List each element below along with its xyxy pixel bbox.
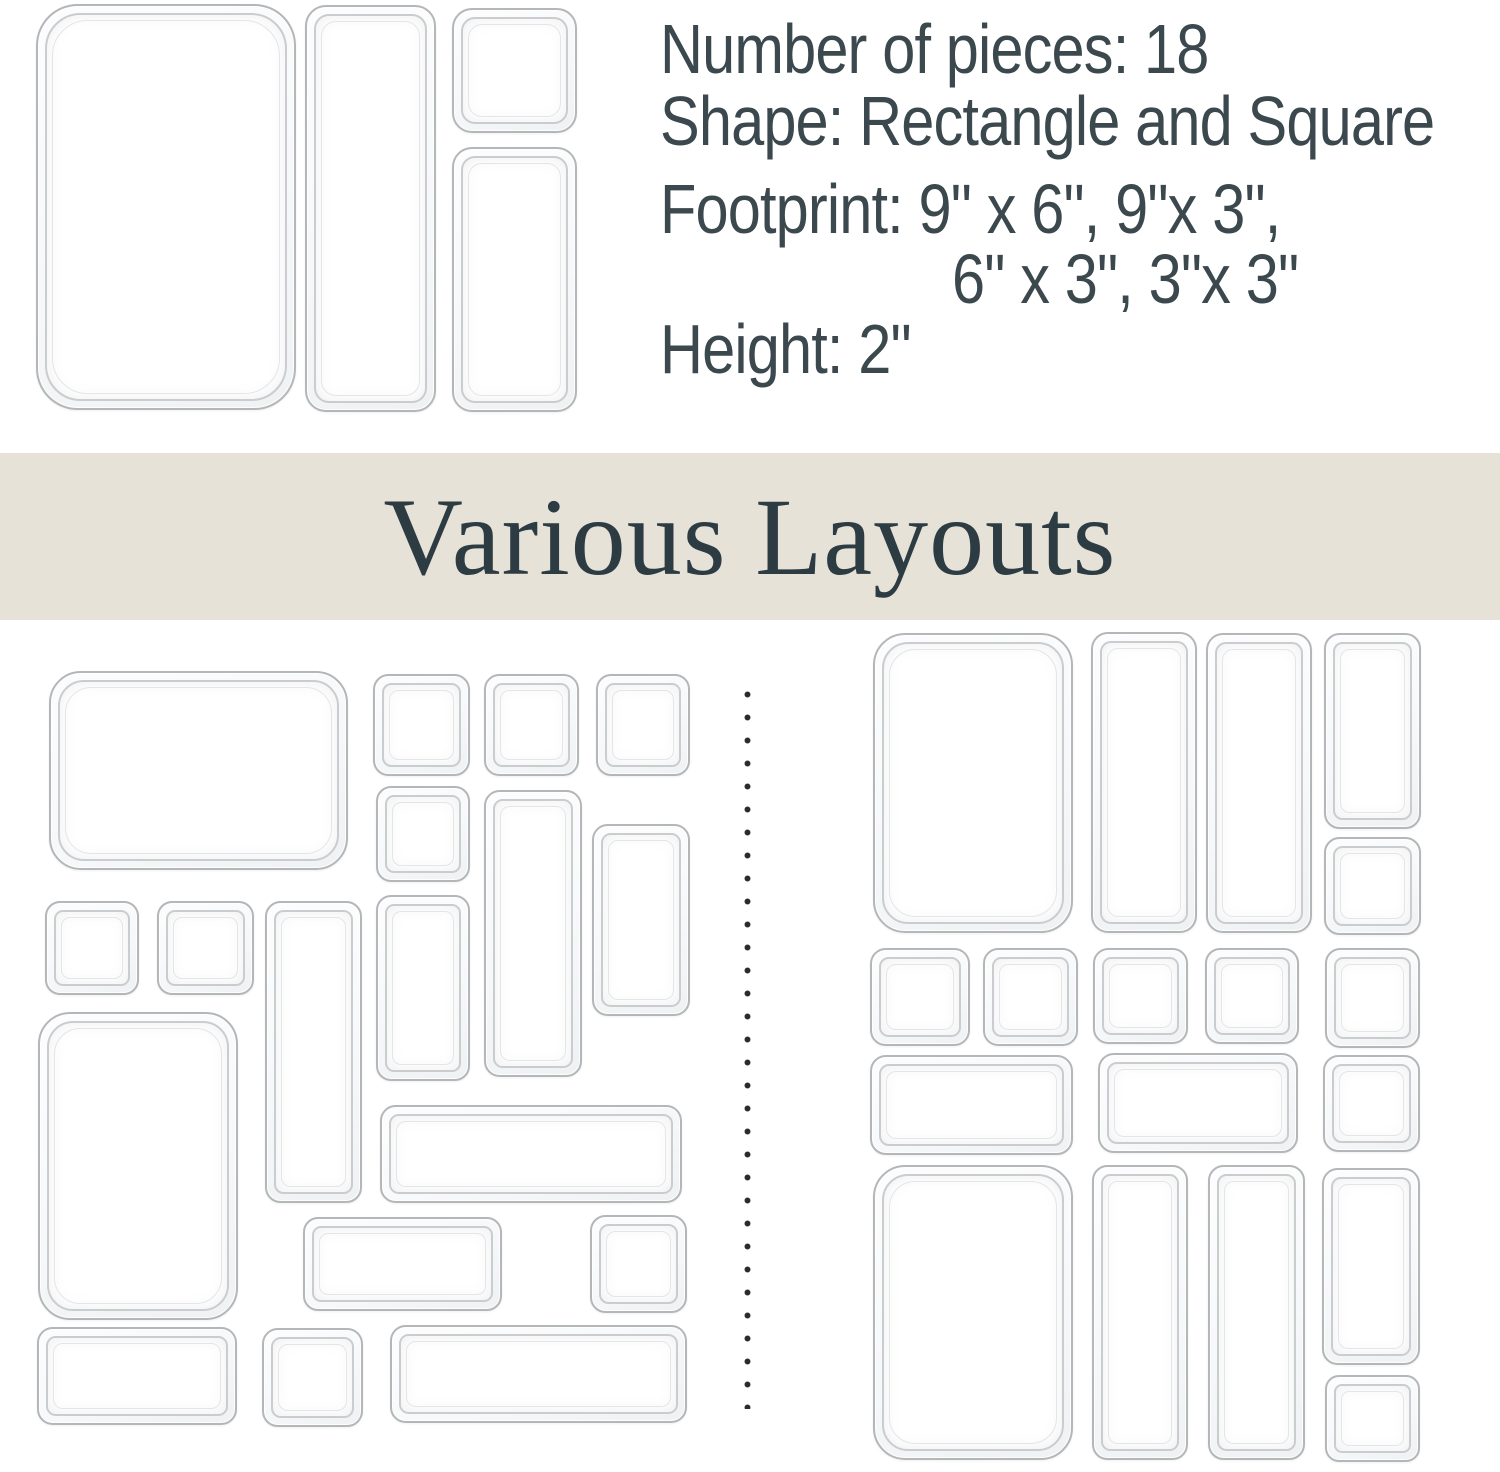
tray-inner-rim (1214, 957, 1290, 1035)
tray-9x6 (873, 633, 1073, 933)
tray-inner-rim (1215, 642, 1303, 924)
tray-9x3 (1091, 632, 1197, 933)
tray-6x3 (870, 1055, 1073, 1155)
tray-3x3 (1325, 948, 1420, 1048)
tray-inner-rim (882, 1174, 1064, 1451)
tray-inner-rim (1101, 1174, 1179, 1451)
tray-inner-rim (1102, 957, 1179, 1035)
tray-inner-rim (1332, 1064, 1411, 1143)
tray-inner-rim (1217, 1174, 1296, 1451)
tray-inner-rim (1107, 1062, 1289, 1144)
tray-3x3 (1323, 1055, 1420, 1152)
tray-9x3 (1206, 633, 1312, 933)
tray-6x3 (1098, 1053, 1298, 1153)
tray-6x3 (1322, 1168, 1420, 1365)
tray-inner-rim (1334, 1384, 1411, 1453)
tray-inner-rim (992, 957, 1069, 1037)
tray-inner-rim (1333, 642, 1412, 820)
tray-9x6 (873, 1165, 1073, 1460)
tray-3x3 (1205, 948, 1299, 1044)
tray-3x3 (1093, 948, 1188, 1044)
tray-inner-rim (879, 957, 961, 1037)
tray-inner-rim (882, 642, 1064, 924)
layout-option-2 (0, 0, 1500, 1472)
tray-3x3 (1325, 1375, 1420, 1462)
tray-inner-rim (1333, 846, 1412, 926)
tray-inner-rim (1331, 1177, 1411, 1356)
tray-9x3 (1092, 1165, 1188, 1460)
tray-6x3 (1324, 633, 1421, 829)
tray-3x3 (1324, 837, 1421, 935)
tray-inner-rim (1100, 641, 1188, 924)
tray-9x3 (1208, 1165, 1305, 1460)
tray-inner-rim (879, 1064, 1064, 1146)
tray-inner-rim (1334, 957, 1411, 1039)
tray-3x3 (870, 948, 970, 1046)
tray-3x3 (983, 948, 1078, 1046)
product-infographic: Number of pieces: 18 Shape: Rectangle an… (0, 0, 1500, 1472)
